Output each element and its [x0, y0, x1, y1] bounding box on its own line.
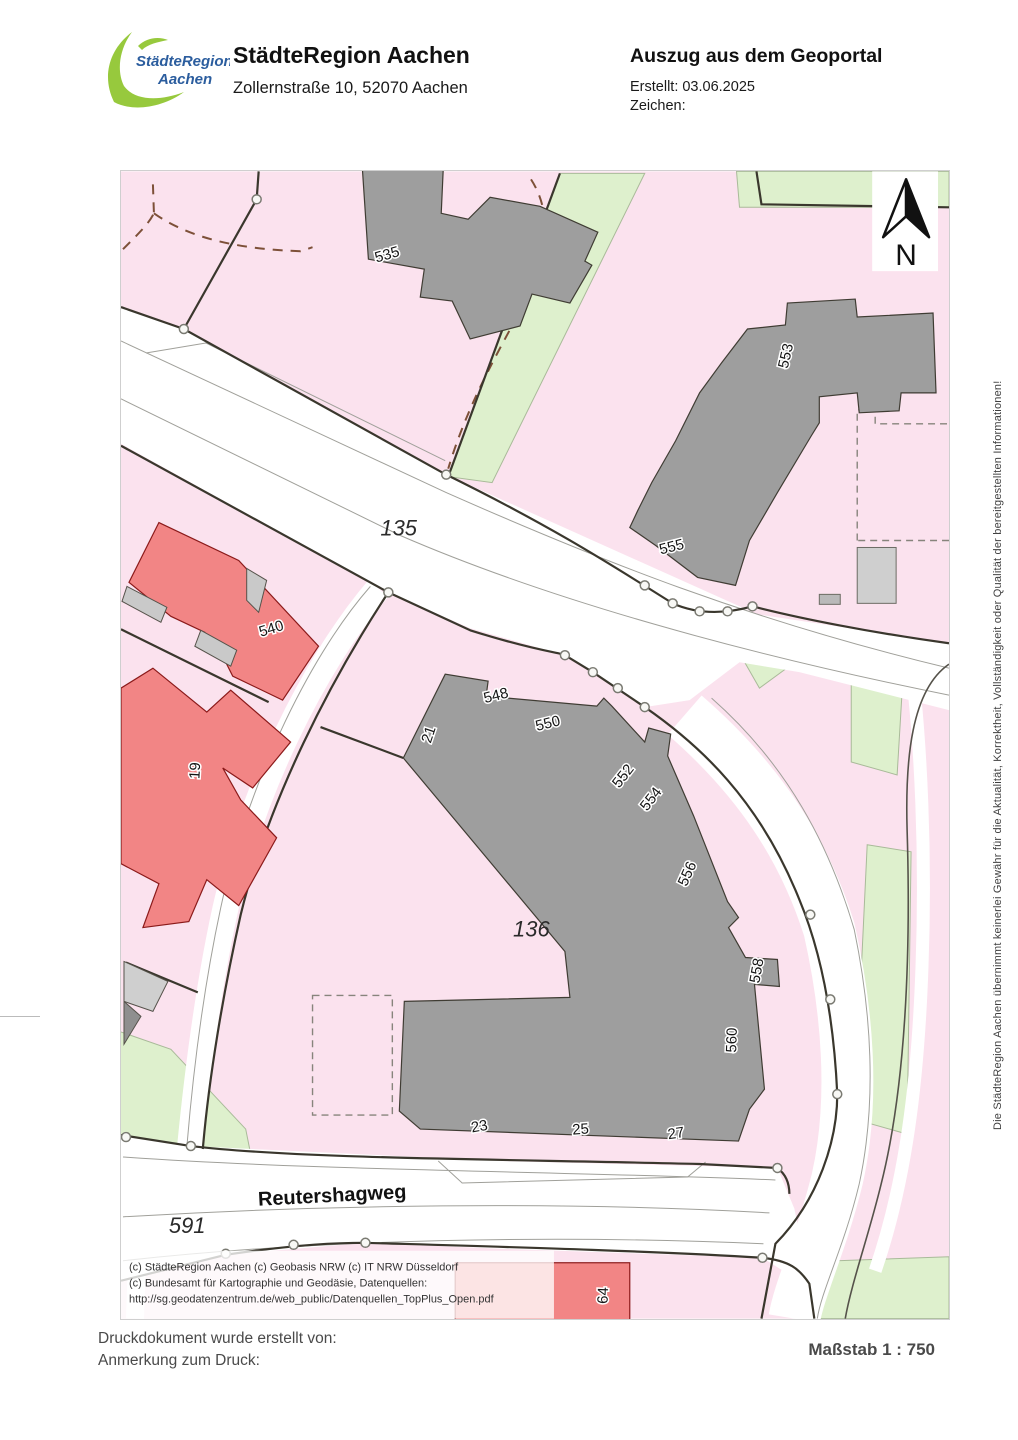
building-label: 19 — [186, 762, 204, 780]
disclaimer-vertical-text: Die StädteRegion Aachen übernimmt keiner… — [992, 348, 1004, 1130]
logo-leaf-icon — [138, 38, 168, 50]
staedteregion-logo: StädteRegion Aachen — [98, 30, 230, 110]
parcel-label: 591 — [169, 1213, 206, 1238]
copyright-box: (c) StädteRegion Aachen (c) Geobasis NRW… — [121, 1251, 554, 1319]
logo-text-line1: StädteRegion — [136, 53, 230, 70]
building-label: 23 — [470, 1117, 489, 1137]
parcel-label: 136 — [513, 917, 550, 942]
map-svg: 535 553 555 540 19 21 548 550 552 554 55… — [121, 171, 949, 1319]
copyright-line: http://sg.geodatenzentrum.de/web_public/… — [129, 1294, 495, 1306]
logo-text-line2: Aachen — [157, 71, 212, 88]
north-arrow: N — [872, 171, 938, 272]
building-label: 27 — [667, 1124, 686, 1143]
fold-mark — [0, 1016, 40, 1017]
page-title: StädteRegion Aachen — [233, 42, 470, 69]
map-scale: Maßstab 1 : 750 — [760, 1340, 935, 1360]
north-label: N — [895, 239, 917, 272]
building-label: 560 — [723, 1027, 741, 1053]
created-date: Erstellt: 03.06.2025 — [630, 79, 755, 95]
parcel-label: 135 — [380, 516, 417, 541]
copyright-line: (c) Bundesamt für Kartographie und Geodä… — [129, 1278, 427, 1290]
footer-created-by: Druckdokument wurde erstellt von: — [98, 1330, 337, 1348]
building-label: 64 — [595, 1287, 613, 1304]
copyright-line: (c) StädteRegion Aachen (c) Geobasis NRW… — [129, 1262, 459, 1274]
document-title: Auszug aus dem Geoportal — [630, 45, 882, 68]
geoportal-print-page: { "header": { "logo": { "line1": "Städte… — [0, 0, 1018, 1440]
reference-label: Zeichen: — [630, 98, 686, 114]
footer-print-note: Anmerkung zum Druck: — [98, 1352, 260, 1370]
page-subtitle: Zollernstraße 10, 52070 Aachen — [233, 79, 468, 98]
map-canvas: 535 553 555 540 19 21 548 550 552 554 55… — [120, 170, 950, 1320]
building-label: 25 — [572, 1121, 590, 1139]
